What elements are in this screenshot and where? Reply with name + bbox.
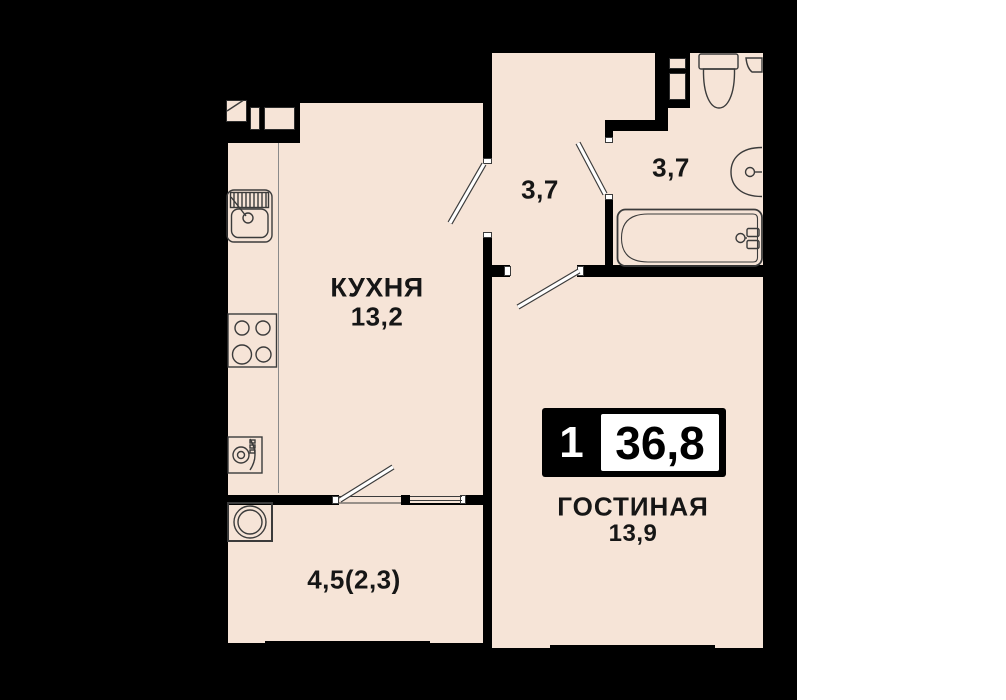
kitchen-area-label: 13,2 bbox=[351, 302, 404, 333]
vent-shaft-icon bbox=[669, 73, 686, 100]
page-background bbox=[797, 0, 1006, 700]
doorway-living bbox=[510, 265, 577, 277]
room-bathroom-conn bbox=[668, 108, 690, 120]
door-jamb bbox=[483, 158, 492, 164]
doorway-kitchen bbox=[483, 164, 492, 232]
floorplan-image: КУХНЯ 13,2 3,7 3,7 ГОСТИНАЯ 13,9 4,5(2,3… bbox=[0, 0, 797, 700]
balcony-area-label: 4,5(2,3) bbox=[307, 565, 401, 596]
door-jamb bbox=[605, 194, 613, 200]
wall-sill bbox=[550, 645, 715, 648]
vent-shaft-icon bbox=[669, 58, 686, 69]
floorplan-screenshot: КУХНЯ 13,2 3,7 3,7 ГОСТИНАЯ 13,9 4,5(2,3… bbox=[0, 0, 1006, 700]
wall bbox=[655, 53, 668, 131]
door-jamb bbox=[577, 266, 584, 276]
apartment-badge: 1 36,8 bbox=[542, 408, 726, 477]
window-balcony bbox=[410, 495, 463, 503]
window-jamb bbox=[460, 495, 466, 504]
door-jamb bbox=[332, 496, 339, 504]
door-jamb bbox=[605, 137, 613, 143]
room-bathroom bbox=[613, 120, 763, 265]
door-jamb bbox=[504, 266, 511, 276]
room-bathroom-nook bbox=[690, 53, 763, 120]
badge-room-count: 1 bbox=[542, 418, 601, 468]
vent-shaft-icon bbox=[226, 100, 247, 122]
wall-sill bbox=[265, 641, 430, 643]
hallway-area-label: 3,7 bbox=[521, 175, 559, 206]
doorway-bathroom bbox=[605, 143, 613, 194]
badge-total-area: 36,8 bbox=[615, 416, 705, 470]
badge-area-box: 36,8 bbox=[601, 414, 719, 471]
door-jamb bbox=[483, 232, 492, 238]
bathroom-area-label: 3,7 bbox=[652, 153, 690, 184]
vent-shaft-icon bbox=[264, 107, 295, 130]
vent-shaft-icon bbox=[250, 107, 260, 130]
kitchen-name-label: КУХНЯ bbox=[330, 273, 423, 304]
doorway-balcony bbox=[339, 495, 401, 505]
living-name-label: ГОСТИНАЯ bbox=[557, 492, 709, 523]
living-area-label: 13,9 bbox=[609, 520, 658, 548]
